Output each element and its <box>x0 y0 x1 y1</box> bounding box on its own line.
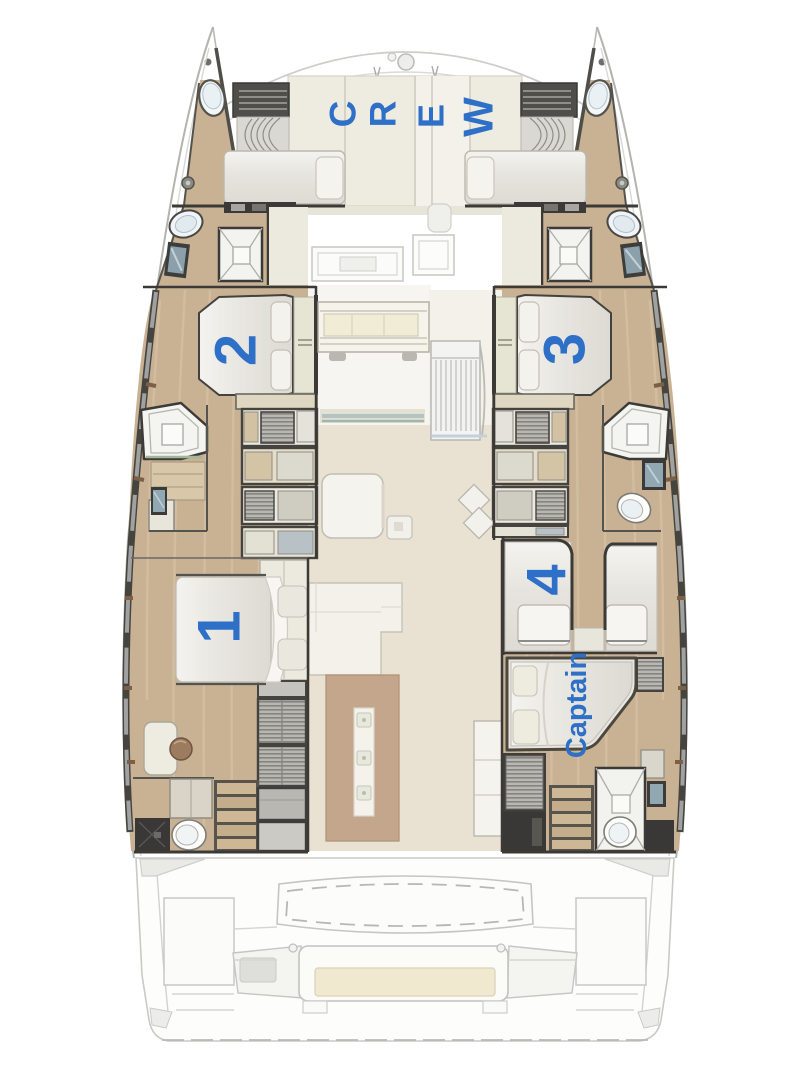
svg-text:2: 2 <box>204 334 269 366</box>
svg-text:W: W <box>455 97 502 137</box>
svg-text:C: C <box>323 101 364 128</box>
svg-text:E: E <box>411 104 452 128</box>
svg-text:R: R <box>363 101 404 128</box>
svg-text:4: 4 <box>515 564 578 595</box>
svg-text:1: 1 <box>186 610 253 643</box>
svg-text:3: 3 <box>533 333 598 365</box>
svg-text:Captain: Captain <box>561 652 593 758</box>
